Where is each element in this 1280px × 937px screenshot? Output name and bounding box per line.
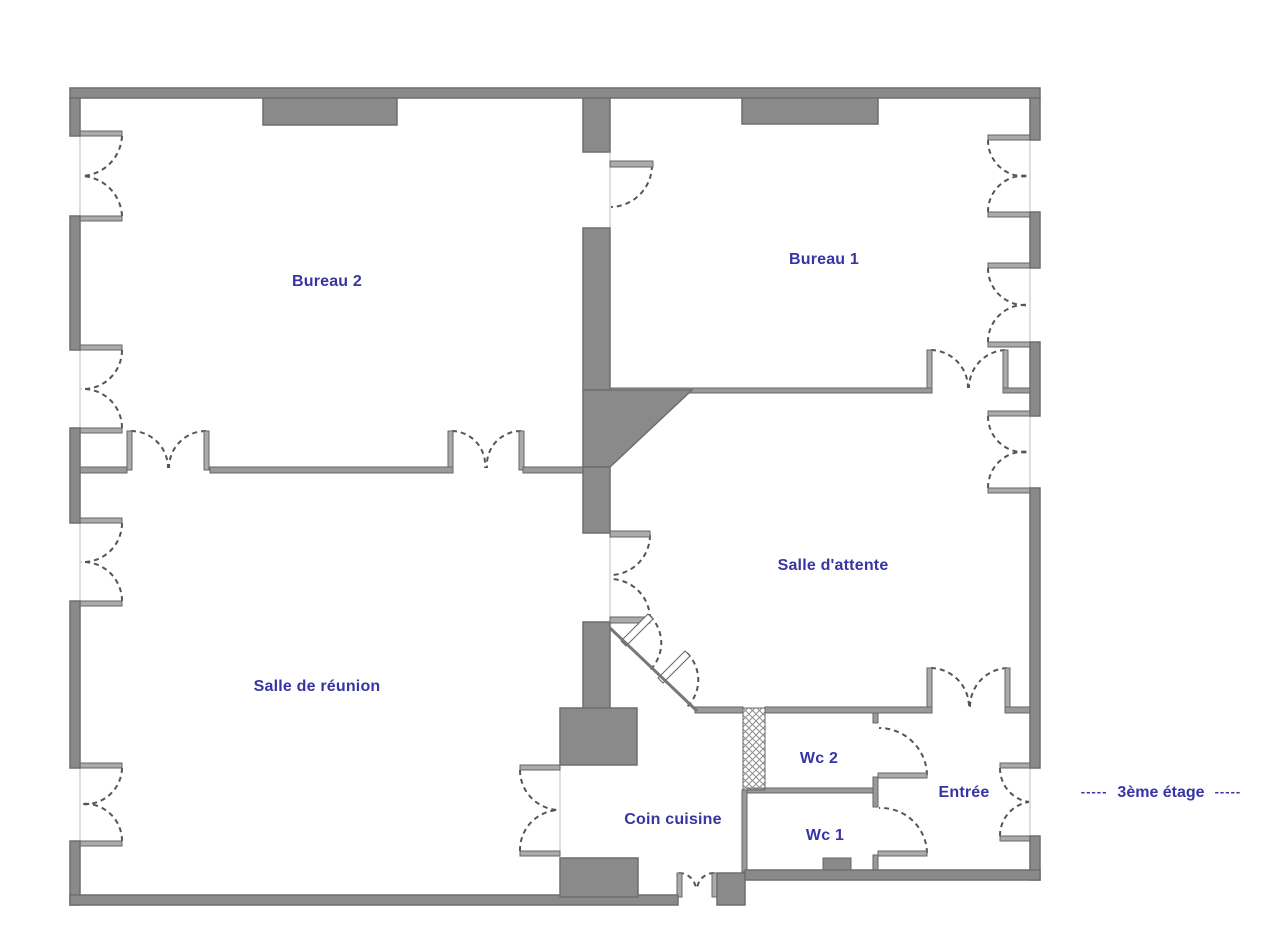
floor-plan-page: Bureau 2 Bureau 1 Salle d'attente Salle … <box>0 0 1280 937</box>
room-label-bureau-1: Bureau 1 <box>789 251 859 269</box>
interior-walls <box>80 388 1030 875</box>
floor-annotation: -----3ème étage----- <box>1081 784 1241 802</box>
floor-annotation-text: 3ème étage <box>1117 784 1204 801</box>
hatched-duct-icon <box>743 708 765 790</box>
window-sills-door-leaves <box>80 131 1030 897</box>
chimney-block-icon <box>742 98 878 124</box>
diagonal-wall <box>610 628 697 711</box>
room-label-salle-reunion: Salle de réunion <box>254 678 381 696</box>
outer-walls <box>70 88 1040 905</box>
room-label-salle-attente: Salle d'attente <box>778 557 889 575</box>
room-label-coin-cuisine: Coin cuisine <box>624 811 722 829</box>
floor-annotation-dashes-left: ----- <box>1081 784 1108 799</box>
angled-wall <box>583 390 692 467</box>
room-label-bureau-2: Bureau 2 <box>292 273 362 291</box>
chimney-block-icon <box>263 98 397 125</box>
floor-annotation-dashes-right: ----- <box>1215 784 1242 799</box>
room-label-wc-2: Wc 2 <box>800 750 838 768</box>
wall-face-lines <box>80 98 1030 905</box>
room-label-wc-1: Wc 1 <box>806 827 844 845</box>
room-label-entree: Entrée <box>939 784 990 802</box>
